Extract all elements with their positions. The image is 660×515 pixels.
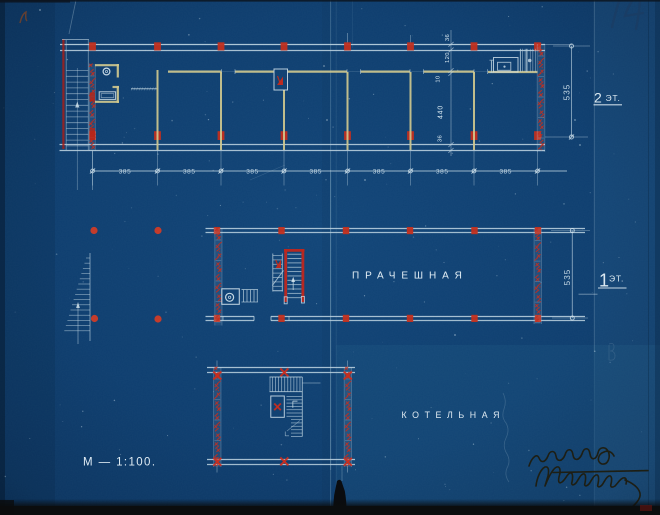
svg-text:385: 385: [436, 168, 448, 175]
svg-text:КОТЕЛЬНАЯ: КОТЕЛЬНАЯ: [402, 410, 506, 420]
svg-text:ЭТ.: ЭТ.: [606, 93, 621, 103]
svg-text:385: 385: [373, 168, 385, 175]
svg-text:385: 385: [119, 168, 131, 175]
svg-text:535: 535: [563, 269, 572, 286]
svg-text:ЭТ.: ЭТ.: [609, 274, 624, 284]
svg-text:36: 36: [438, 135, 444, 142]
svg-text:535: 535: [563, 84, 572, 101]
svg-text:440: 440: [438, 105, 445, 119]
svg-text:2: 2: [594, 90, 602, 106]
svg-text:385: 385: [310, 168, 322, 175]
svg-text:385: 385: [246, 168, 258, 175]
svg-text:120: 120: [445, 52, 451, 63]
svg-text:ПРАЧЕШНАЯ: ПРАЧЕШНАЯ: [352, 271, 468, 282]
svg-text:10: 10: [436, 75, 442, 82]
svg-text:М — 1:100.: М — 1:100.: [83, 457, 156, 469]
svg-text:385: 385: [500, 168, 512, 175]
svg-text:385: 385: [183, 168, 195, 175]
svg-text:36: 36: [445, 34, 451, 41]
